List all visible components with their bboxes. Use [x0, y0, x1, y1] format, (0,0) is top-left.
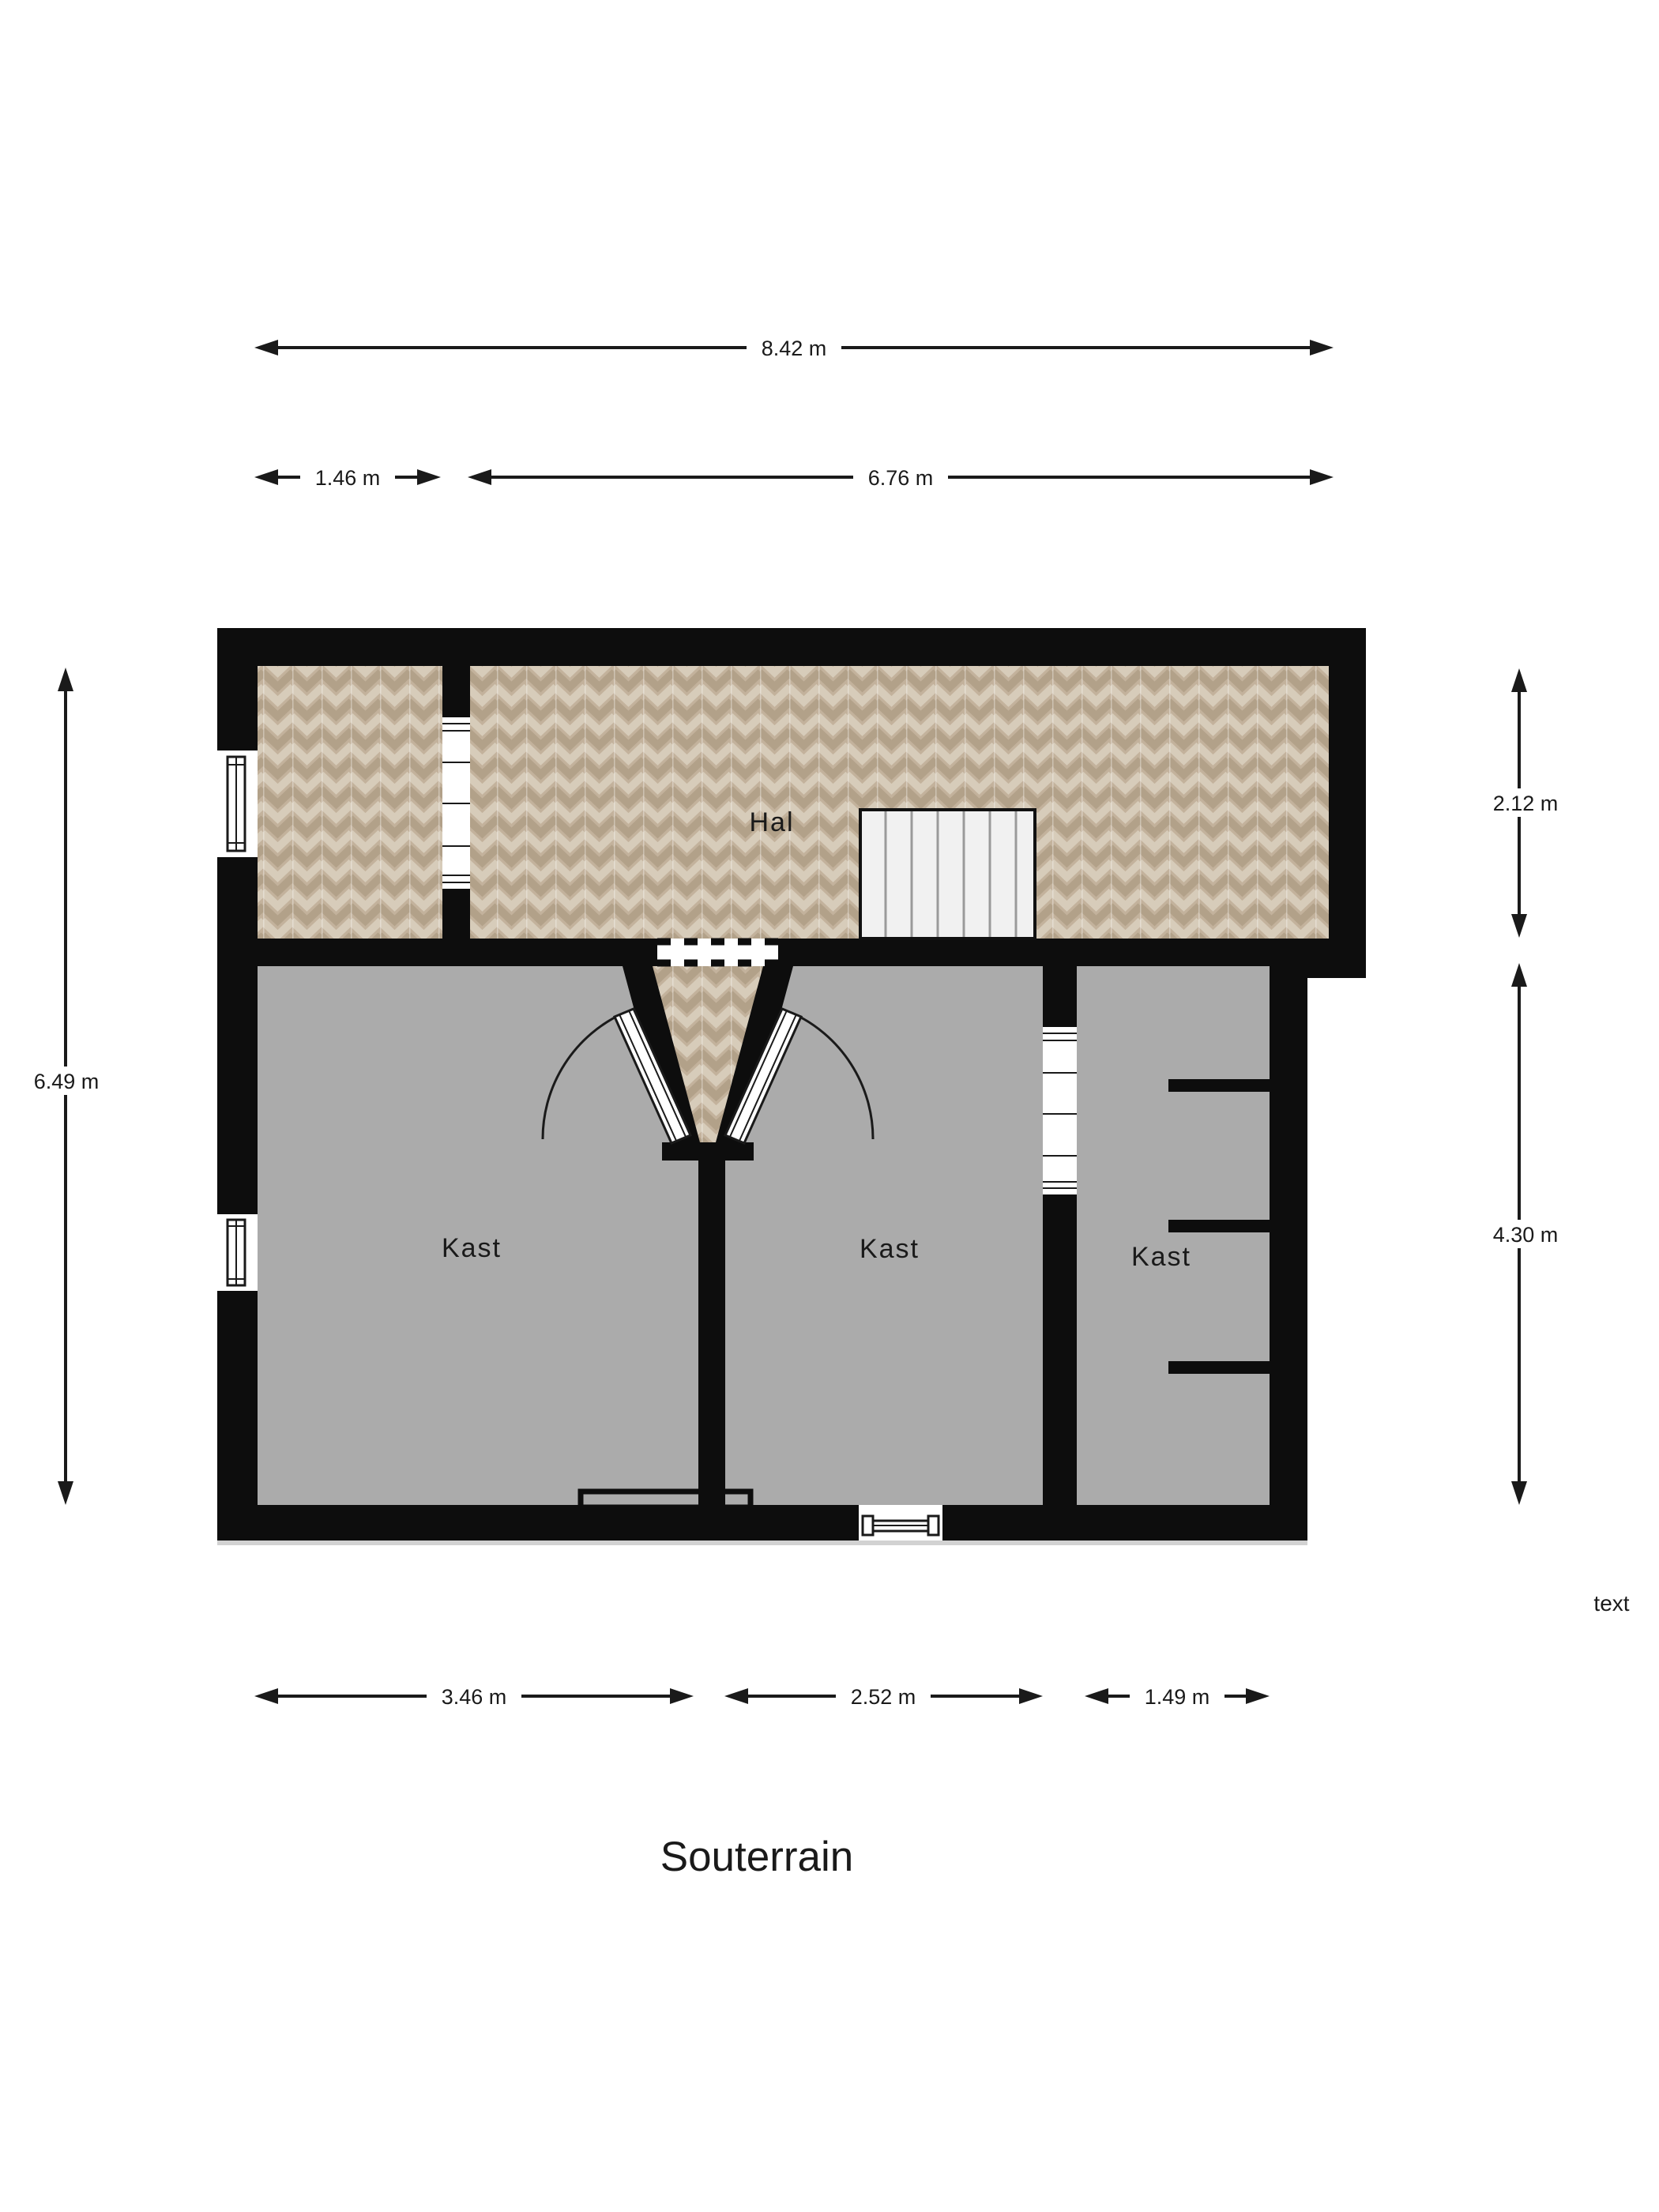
leftroom-hal-wall	[442, 666, 470, 717]
bottom-exterior-wall	[217, 1505, 859, 1540]
top-exterior-wall	[217, 628, 1366, 666]
dim-top-left-width: 1.46 m	[254, 463, 441, 491]
dim-label-top-left-width: 1.46 m	[315, 466, 381, 490]
left-exterior-wall	[217, 857, 258, 1214]
dim-hal-height: 2.12 m	[1477, 668, 1574, 938]
dim-bottom-right-width: 1.49 m	[1085, 1682, 1270, 1710]
left-window-upper	[218, 750, 258, 857]
right-exterior-wall-upper	[1329, 628, 1366, 978]
dim-total-width: 8.42 m	[254, 333, 1334, 362]
room-label-kast-middle: Kast	[860, 1234, 920, 1264]
kast-right-shelf	[1168, 1361, 1270, 1374]
hal-opening-dashed	[657, 939, 778, 966]
room-label-hal: Hal	[749, 807, 794, 837]
hal-bottom-wall	[258, 939, 657, 966]
room-label-kast-right: Kast	[1131, 1242, 1191, 1272]
floorplan-page: Hal Kast Kast Kast 8.42 m 1.46 m 6.76 m	[0, 0, 1659, 2212]
mid-right-divider-wall	[1043, 1194, 1077, 1505]
vestibule-bottom-wall	[662, 1142, 754, 1161]
dim-label-bottom-left-width: 3.46 m	[442, 1685, 507, 1709]
left-window-lower	[218, 1214, 258, 1291]
dim-label-top-right-width: 6.76 m	[868, 466, 934, 490]
dim-lower-height: 4.30 m	[1477, 963, 1574, 1505]
leftroom-hal-wall	[442, 889, 470, 939]
dim-label-lower-height: 4.30 m	[1493, 1223, 1559, 1247]
kast-right-shelf	[1168, 1220, 1270, 1232]
page-title: Souterrain	[660, 1834, 854, 1880]
left-mid-divider-wall	[698, 1161, 725, 1505]
dim-bottom-middle-width: 2.52 m	[724, 1682, 1043, 1710]
bottom-window	[859, 1505, 942, 1540]
left-exterior-wall	[217, 628, 258, 750]
interior-window-leftroom	[442, 717, 470, 889]
interior-window-kast	[1043, 1027, 1077, 1194]
left-mid-divider-wall-foot	[698, 1492, 725, 1507]
room-label-kast-left: Kast	[442, 1233, 502, 1263]
dim-label-total-width: 8.42 m	[762, 337, 827, 360]
mid-right-divider-wall	[1043, 966, 1077, 1027]
floor-note: text	[1593, 1591, 1629, 1616]
dim-label-total-height: 6.49 m	[34, 1070, 100, 1093]
dim-bottom-left-width: 3.46 m	[254, 1682, 694, 1710]
dim-total-height: 6.49 m	[18, 668, 115, 1505]
left-exterior-wall	[217, 1291, 258, 1540]
hal-bottom-wall	[778, 939, 1329, 966]
kast-right-shelf	[1168, 1079, 1270, 1092]
dim-label-bottom-right-width: 1.49 m	[1145, 1685, 1210, 1709]
dim-top-right-width: 6.76 m	[468, 463, 1334, 491]
dim-label-hal-height: 2.12 m	[1493, 792, 1559, 815]
right-exterior-wall-lower	[1270, 943, 1307, 1540]
kast-right-floor	[1077, 966, 1270, 1505]
dim-label-bottom-middle-width: 2.52 m	[851, 1685, 916, 1709]
floor-layer	[258, 666, 1329, 1505]
bottom-exterior-wall	[942, 1505, 1307, 1540]
stairs	[860, 810, 1035, 939]
left-top-room-floor	[258, 666, 442, 939]
bottom-wall-shadow	[217, 1540, 1307, 1545]
floorplan-drawing: Hal Kast Kast Kast 8.42 m 1.46 m 6.76 m	[0, 0, 1659, 2212]
